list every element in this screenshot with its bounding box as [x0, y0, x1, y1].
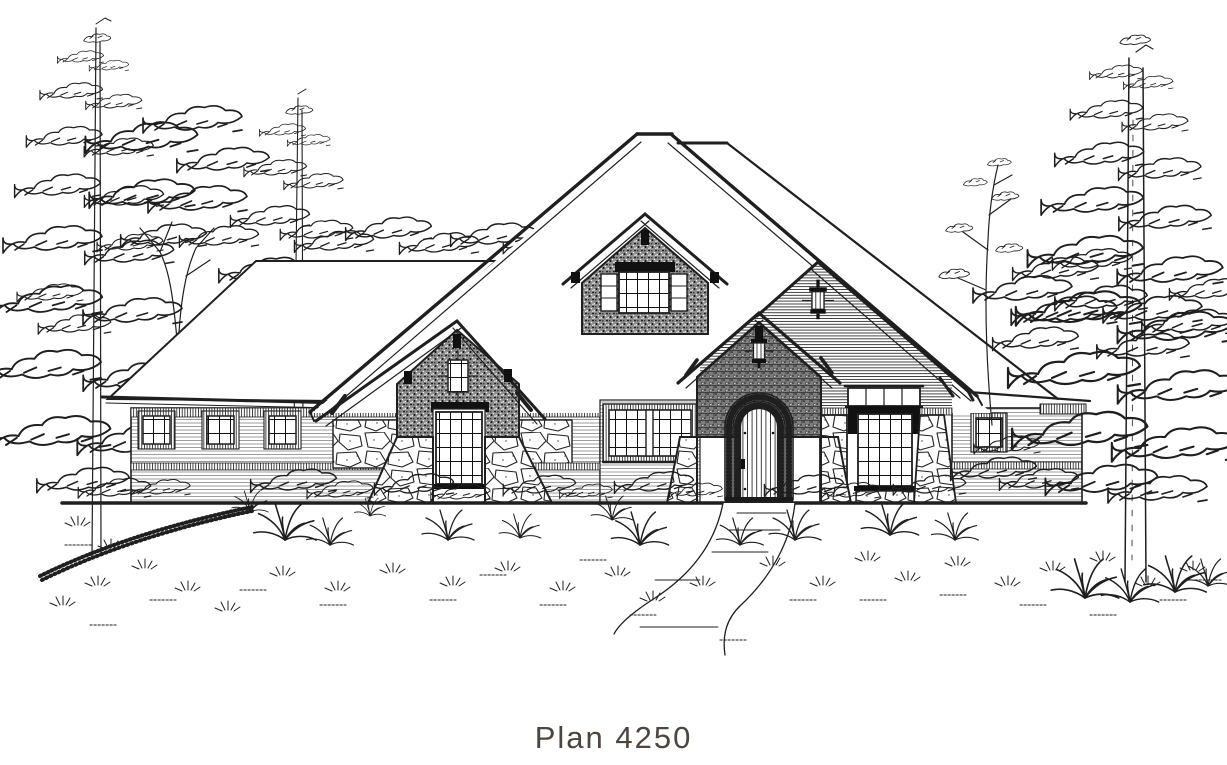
dormer-window	[619, 272, 669, 313]
gable-peak-window	[448, 360, 468, 392]
plan-caption: Plan 4250	[0, 720, 1227, 756]
left-wing-windows	[138, 411, 301, 449]
right-wing-window	[976, 418, 1002, 447]
right-shrub-band	[973, 249, 1227, 359]
ridge-beam	[641, 230, 649, 245]
elevation-sheet: Plan 4250	[0, 0, 1227, 765]
house	[62, 131, 1090, 503]
window-header	[615, 262, 675, 272]
elevation-drawing	[0, 0, 1227, 765]
front-walkway	[614, 503, 795, 655]
right-gable-window	[858, 414, 912, 486]
left-gable-window	[436, 412, 482, 484]
arched-front-door	[740, 408, 778, 499]
